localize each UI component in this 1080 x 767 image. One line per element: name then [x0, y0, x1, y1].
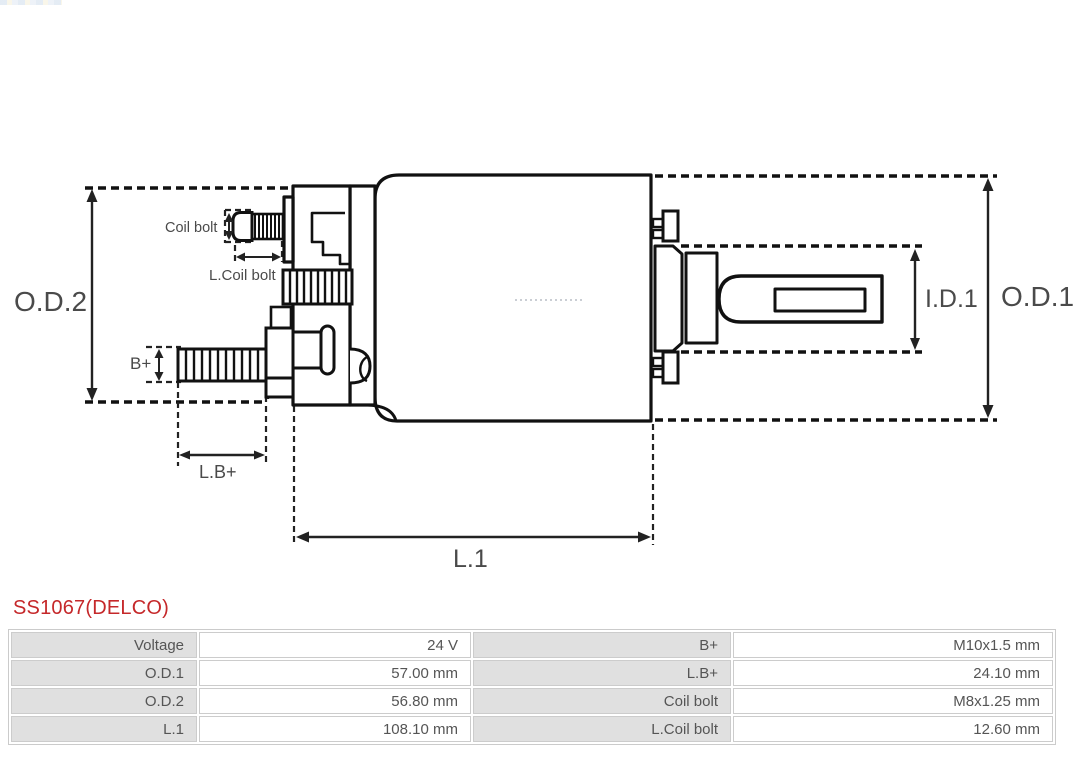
coil-bolt-stud: [233, 213, 283, 241]
spec-label: B+: [473, 632, 731, 658]
dimension-label-coil-bolt: Coil bolt: [165, 220, 217, 236]
spec-value: 108.10 mm: [199, 716, 471, 742]
spec-value: 12.60 mm: [733, 716, 1053, 742]
dimension-label-id1: I.D.1: [925, 285, 978, 313]
dimension-label-od1: O.D.1: [1001, 281, 1074, 312]
spec-label: L.B+: [473, 660, 731, 686]
solenoid-body: [375, 175, 651, 421]
table-row: Voltage 24 V B+ M10x1.5 mm: [11, 632, 1053, 658]
spec-value: 57.00 mm: [199, 660, 471, 686]
table-row: O.D.1 57.00 mm L.B+ 24.10 mm: [11, 660, 1053, 686]
table-row: O.D.2 56.80 mm Coil bolt M8x1.25 mm: [11, 688, 1053, 714]
spec-value: 24 V: [199, 632, 471, 658]
rear-flange: [655, 246, 717, 351]
spec-value: 24.10 mm: [733, 660, 1053, 686]
spec-label: Coil bolt: [473, 688, 731, 714]
spec-label: O.D.2: [11, 688, 197, 714]
plunger: [719, 276, 882, 322]
spec-table: Voltage 24 V B+ M10x1.5 mm O.D.1 57.00 m…: [8, 629, 1056, 745]
spec-value: M10x1.5 mm: [733, 632, 1053, 658]
spec-label: L.1: [11, 716, 197, 742]
coil-bolt-thread-bushing: [283, 270, 352, 304]
spec-value: M8x1.25 mm: [733, 688, 1053, 714]
product-title: SS1067(DELCO): [13, 597, 169, 620]
dimension-label-lb-plus: L.B+: [199, 462, 237, 482]
spec-label: O.D.1: [11, 660, 197, 686]
spec-value: 56.80 mm: [199, 688, 471, 714]
spec-label: L.Coil bolt: [473, 716, 731, 742]
solenoid-technical-drawing: O.D.2 O.D.1 I.D.1 L.1 L.B+ B+ Coil bolt …: [0, 0, 1080, 590]
table-row: L.1 108.10 mm L.Coil bolt 12.60 mm: [11, 716, 1053, 742]
dimension-label-b-plus: B+: [130, 354, 151, 373]
product-drawing-page: O.D.2 O.D.1 I.D.1 L.1 L.B+ B+ Coil bolt …: [0, 0, 1080, 767]
dimension-label-l1: L.1: [453, 545, 488, 573]
dimension-label-l-coil-bolt: L.Coil bolt: [209, 267, 277, 284]
spec-label: Voltage: [11, 632, 197, 658]
dimension-label-od2: O.D.2: [14, 286, 87, 317]
